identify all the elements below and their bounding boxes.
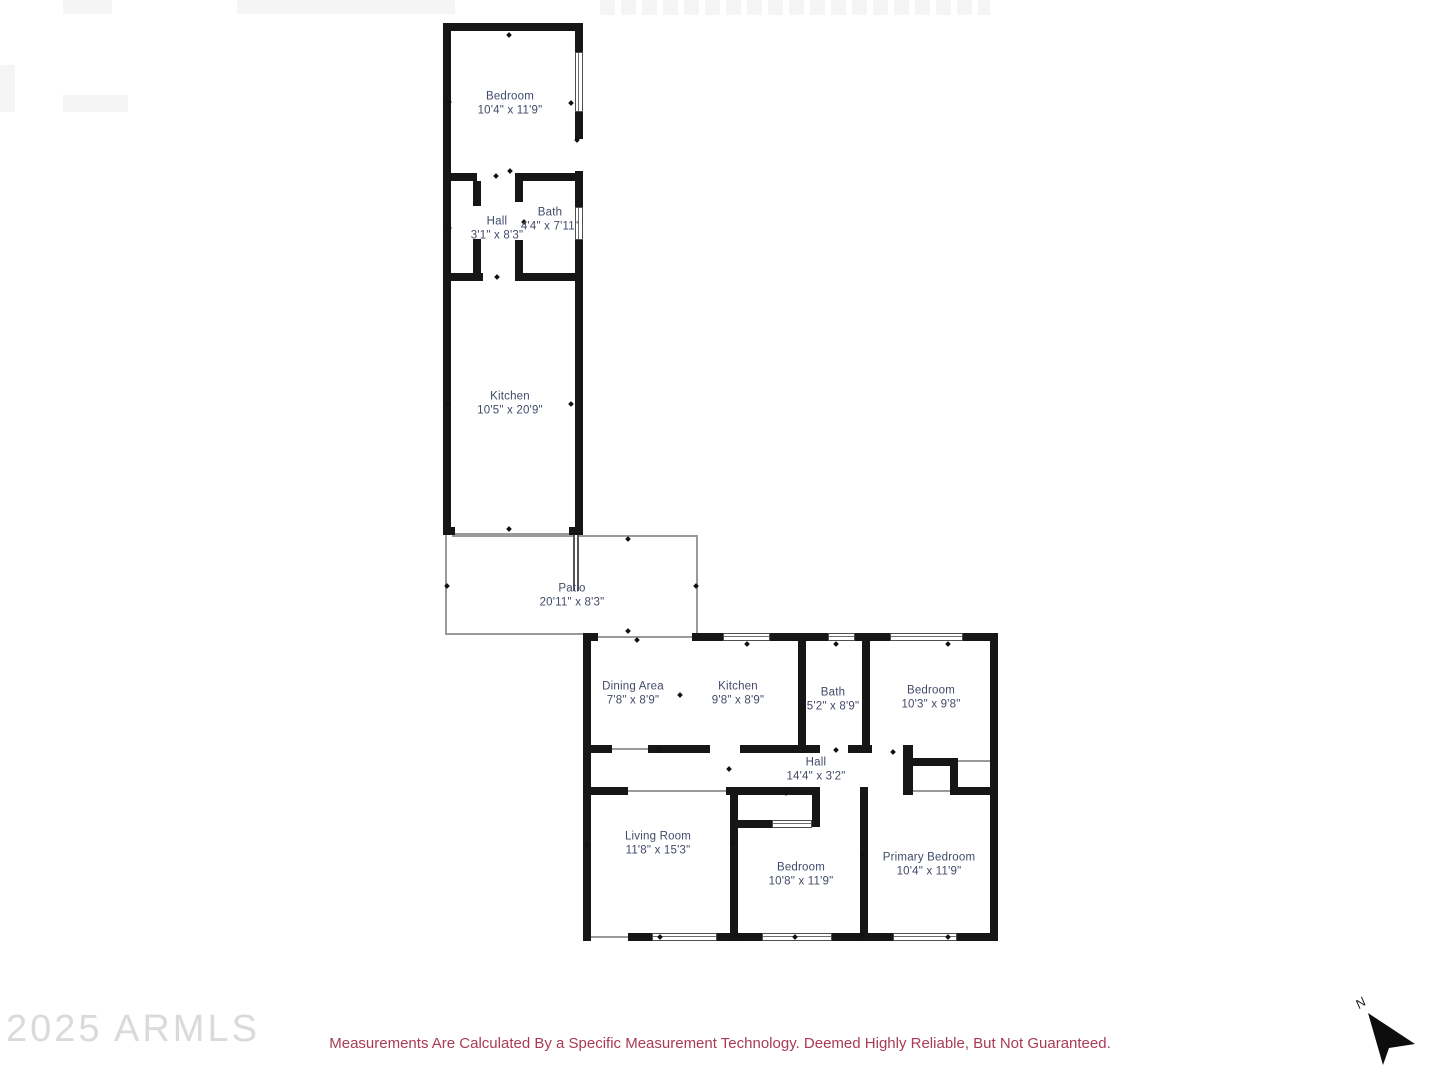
room-label-bedroom-s: Bedroom 10'8" x 11'9" <box>769 862 834 889</box>
room-dims: 10'8" x 11'9" <box>769 875 834 889</box>
wall-segment <box>569 527 583 535</box>
marker-dot <box>726 766 732 772</box>
wall-segment <box>812 787 820 827</box>
room-name: Kitchen <box>718 681 758 695</box>
room-dims: 14'4" x 3'2" <box>786 770 845 784</box>
window-symbol <box>772 820 812 828</box>
room-label-dining-area: Dining Area 7'8" x 8'9" <box>602 681 664 708</box>
marker-dot <box>507 168 513 174</box>
wall-segment <box>860 787 868 933</box>
room-name: Kitchen <box>490 391 530 405</box>
wall-segment <box>443 273 483 281</box>
room-name: Primary Bedroom <box>883 852 975 866</box>
room-name: Bedroom <box>486 91 534 105</box>
room-name: Patio <box>558 583 585 597</box>
north-arrow-shape <box>1368 1013 1415 1065</box>
wall-segment <box>855 633 890 641</box>
patio-or-opening-line <box>591 936 628 938</box>
room-dims: 3'1" x 8'3" <box>471 229 523 243</box>
room-label-bedroom-ne: Bedroom 10'3" x 9'8" <box>901 685 960 712</box>
room-name: Living Room <box>625 831 691 845</box>
room-label-hall-casita: Hall 3'1" x 8'3" <box>471 216 523 243</box>
wall-segment <box>443 173 477 181</box>
patio-or-opening-line <box>612 748 648 750</box>
wall-segment <box>903 745 913 795</box>
room-dims: 9'8" x 8'9" <box>712 694 764 708</box>
room-label-kitchen-main: Kitchen 9'8" x 8'9" <box>712 681 764 708</box>
room-name: Dining Area <box>602 681 664 695</box>
wall-segment <box>730 795 738 933</box>
room-label-hall-main: Hall 14'4" x 3'2" <box>786 757 845 784</box>
room-dims: 20'11" x 8'3" <box>540 596 605 610</box>
marker-dot <box>625 536 631 542</box>
wall-segment <box>628 933 652 941</box>
room-name: Bedroom <box>777 862 825 876</box>
room-name: Bedroom <box>907 685 955 699</box>
wall-segment <box>740 745 820 753</box>
marker-dot <box>506 32 512 38</box>
room-label-kitchen-casita: Kitchen 10'5" x 20'9" <box>477 391 543 418</box>
marker-dot <box>744 641 750 647</box>
room-label-bath-casita: Bath 4'4" x 7'11" <box>521 207 579 234</box>
wall-segment <box>575 240 583 535</box>
wall-segment <box>583 633 591 941</box>
room-dims: 10'4" x 11'9" <box>478 104 543 118</box>
wall-segment <box>957 933 998 941</box>
wall-segment <box>591 787 628 795</box>
wall-segment <box>770 633 828 641</box>
room-name: Hall <box>806 757 827 771</box>
wall-segment <box>726 787 820 795</box>
room-dims: 10'5" x 20'9" <box>477 404 543 418</box>
marker-dot <box>634 637 640 643</box>
wall-segment <box>717 933 762 941</box>
wall-segment <box>692 633 723 641</box>
marker-dot <box>833 747 839 753</box>
room-dims: 5'2" x 8'9" <box>807 700 859 714</box>
wall-segment <box>515 273 583 281</box>
room-name: Bath <box>821 687 845 701</box>
marker-dot <box>625 628 631 634</box>
watermark-ghost-strip <box>600 0 990 15</box>
marker-dot <box>568 100 574 106</box>
patio-or-opening-line <box>598 636 692 638</box>
wall-segment <box>473 181 481 206</box>
wall-segment <box>575 23 583 52</box>
watermark-ghost-mark <box>0 65 15 112</box>
patio-or-opening-line <box>628 790 726 792</box>
watermark-ghost-mark <box>63 95 128 112</box>
wall-segment <box>591 745 612 753</box>
watermark-ghost-mark <box>237 0 455 14</box>
patio-or-opening-line <box>958 760 990 762</box>
marker-dot <box>506 526 512 532</box>
wall-segment <box>848 745 872 753</box>
room-label-primary-bedroom: Primary Bedroom 10'4" x 11'9" <box>883 852 975 879</box>
marker-dot <box>493 173 499 179</box>
room-dims: 7'8" x 8'9" <box>607 694 659 708</box>
marker-dot <box>945 641 951 647</box>
marker-dot <box>494 274 500 280</box>
wall-segment <box>798 641 806 753</box>
north-arrow-icon: N <box>1337 992 1437 1077</box>
room-dims: 4'4" x 7'11" <box>521 220 579 234</box>
room-dims: 11'8" x 15'3" <box>626 844 691 858</box>
marker-dot <box>890 749 896 755</box>
marker-dot <box>568 401 574 407</box>
watermark-ghost-mark <box>63 0 112 14</box>
patio-or-opening-line <box>913 790 950 792</box>
room-dims: 10'4" x 11'9" <box>897 865 962 879</box>
measurement-disclaimer: Measurements Are Calculated By a Specifi… <box>0 1035 1440 1052</box>
patio-or-opening-line <box>445 633 585 635</box>
room-label-bath-main: Bath 5'2" x 8'9" <box>807 687 859 714</box>
window-symbol <box>575 52 583 112</box>
window-symbol <box>890 633 963 641</box>
wall-segment <box>950 787 998 795</box>
room-name: Hall <box>487 216 508 230</box>
window-symbol <box>828 633 855 641</box>
wall-segment <box>443 527 455 535</box>
room-label-patio: Patio 20'11" x 8'3" <box>540 583 605 610</box>
wall-segment <box>515 181 523 202</box>
wall-segment <box>738 820 772 828</box>
room-name: Bath <box>538 207 562 221</box>
wall-segment <box>862 641 870 753</box>
north-label: N <box>1352 994 1369 1012</box>
wall-segment <box>443 23 583 31</box>
wall-segment <box>575 112 583 139</box>
marker-dot <box>677 692 683 698</box>
floorplan-canvas: Bedroom 10'4" x 11'9" Hall 3'1" x 8'3" B… <box>0 0 1440 1080</box>
room-dims: 10'3" x 9'8" <box>901 698 960 712</box>
marker-dot <box>833 641 839 647</box>
room-label-living-room: Living Room 11'8" x 15'3" <box>625 831 691 858</box>
room-label-bedroom-casita: Bedroom 10'4" x 11'9" <box>478 91 543 118</box>
wall-segment <box>515 173 583 181</box>
